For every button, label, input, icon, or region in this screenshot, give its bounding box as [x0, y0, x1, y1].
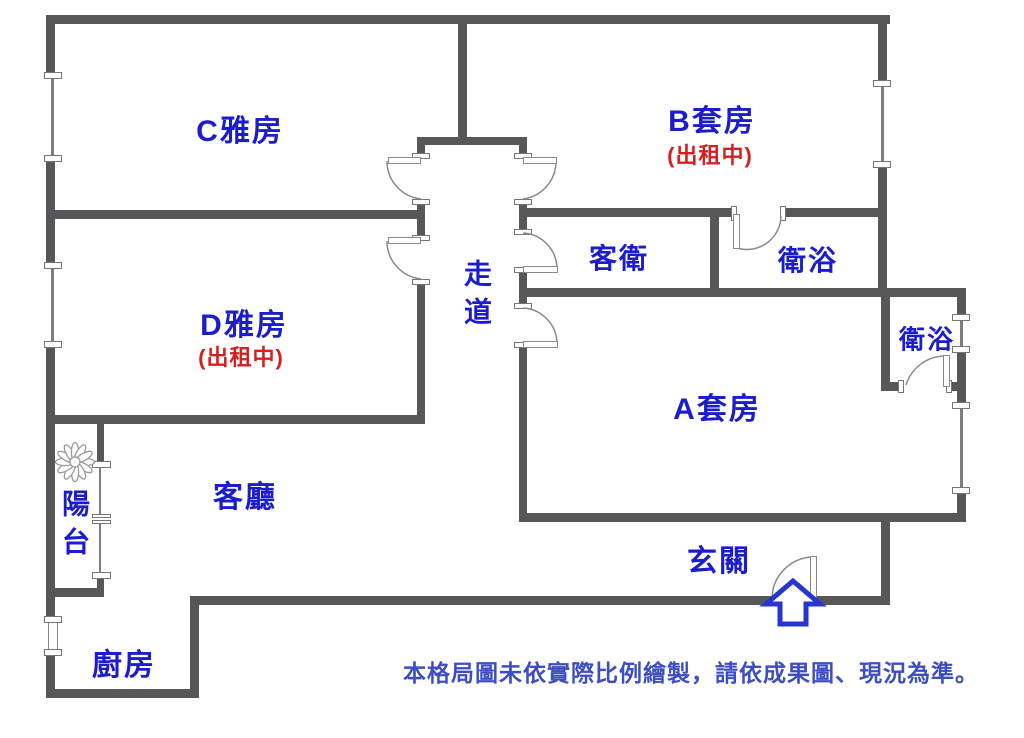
- balcony-label: 陽台: [54, 489, 94, 565]
- kitchen-label: 廚房: [92, 640, 156, 684]
- floorplan-canvas: C雅房 B套房 (出租中) D雅房 (出租中) 走道 客衛 衛浴 衛浴 A套房 …: [0, 0, 1024, 738]
- guest-bath-label: 客衛: [589, 237, 649, 277]
- entrance-arrow-icon: [0, 0, 1024, 738]
- room-a-label: A套房: [673, 384, 761, 428]
- living-room-label: 客廳: [213, 472, 277, 516]
- corridor-label: 走道: [456, 259, 496, 335]
- room-b-label: B套房: [668, 96, 756, 140]
- bath-b-label: 衛浴: [778, 239, 838, 279]
- room-d-status: (出租中): [198, 340, 284, 372]
- room-b-status: (出租中): [667, 138, 753, 170]
- room-d-label: D雅房: [200, 300, 288, 344]
- bath-a-label: 衛浴: [899, 320, 955, 357]
- entry-label: 玄關: [687, 536, 751, 580]
- disclaimer-text: 本格局圖未依實際比例繪製，請依成果圖、現況為準。: [403, 654, 979, 688]
- room-c-label: C雅房: [196, 106, 284, 150]
